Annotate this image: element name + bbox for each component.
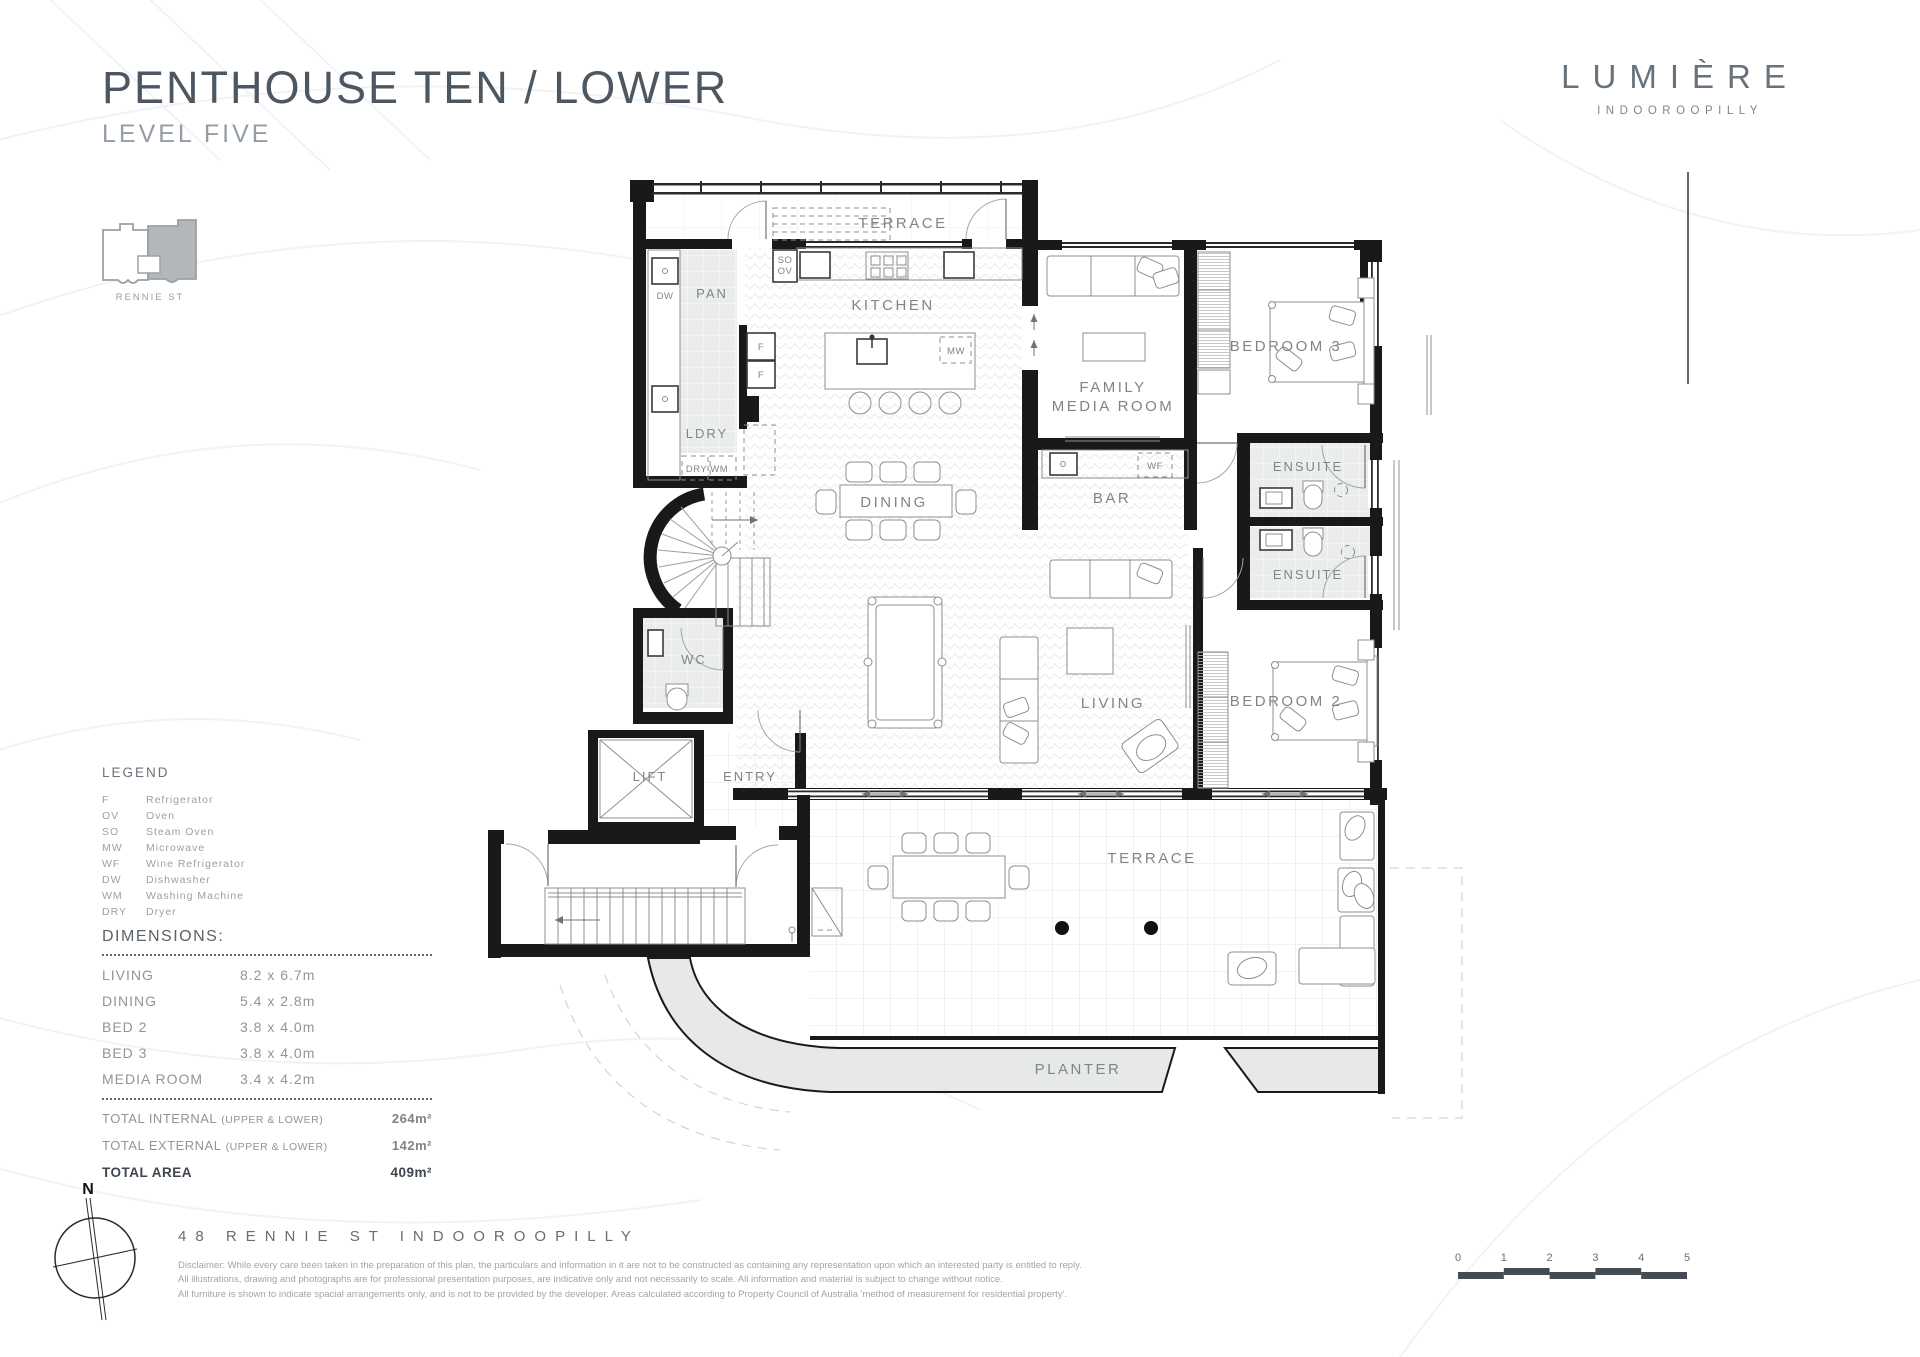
scale-tick-1: 1 [1501,1252,1507,1264]
label-ensuite1: ENSUITE [1273,459,1343,474]
terrace-column [1144,921,1158,935]
brand-block: LUMIÈRE INDOOROOPILLY [1530,58,1830,117]
pantry-floor [680,250,737,453]
dotted-divider [102,1098,432,1100]
terrace-top-floor [646,196,1022,240]
scale-bar: 0 1 2 3 4 5 [1455,1252,1690,1279]
terrace-bottom-edge [810,1036,1382,1040]
label-bedroom3: BEDROOM 3 [1230,338,1343,355]
dimension-row: LIVING8.2 x 6.7m [102,962,432,988]
scale-tick-0: 0 [1455,1252,1461,1264]
floor-plan: TERRACE PAN SO OV DW KITCHEN MW F F LDRY… [488,180,1462,1150]
scale-tick-5: 5 [1684,1252,1690,1264]
label-terrace-bottom: TERRACE [1107,850,1196,867]
total-external-row: TOTAL EXTERNAL (UPPER & LOWER) 142m² [102,1133,432,1160]
footer-address: 48 RENNIE ST INDOOROOPILLY [178,1228,1158,1245]
legend-block: LEGEND FRefrigerator OVOven SOSteam Oven… [102,765,245,920]
label-media-room: MEDIA ROOM [1052,398,1175,415]
label-f2: F [758,370,764,381]
label-so: SO [778,255,793,266]
bedroom2-furniture [1198,640,1377,788]
page-subtitle: LEVEL FIVE [102,120,728,149]
label-ov: OV [778,266,793,277]
header: PENTHOUSE TEN / LOWER LEVEL FIVE [102,62,728,149]
terrace-column [1055,921,1069,935]
label-kitchen: KITCHEN [851,297,934,314]
legend-item: OVOven [102,808,245,824]
page-title: PENTHOUSE TEN / LOWER [102,62,728,114]
legend-item: FRefrigerator [102,792,245,808]
legend-item: DRYDryer [102,904,245,920]
legend-item: MWMicrowave [102,840,245,856]
label-bar: BAR [1093,490,1131,507]
label-family: FAMILY [1079,379,1146,396]
disclaimer-line: Disclaimer: While every care been taken … [178,1259,1158,1273]
label-terrace-top: TERRACE [858,215,947,232]
terrace-right-edge [1378,798,1385,1094]
label-dining: DINING [860,494,928,511]
compass: N [53,1181,137,1320]
legend-item: SOSteam Oven [102,824,245,840]
legend-item: WFWine Refrigerator [102,856,245,872]
compass-north-label: N [82,1181,94,1198]
locator-highlight [138,256,160,273]
bedroom3-furniture [1198,252,1374,404]
brand-divider-line [1687,172,1689,384]
legend-item: WMWashing Machine [102,888,245,904]
dimension-row: BED 33.8 x 4.0m [102,1040,432,1066]
dimension-row: BED 23.8 x 4.0m [102,1014,432,1040]
scale-tick-2: 2 [1547,1252,1553,1264]
floorplan-page: { "header": { "title": "PENTHOUSE TEN / … [0,0,1920,1357]
label-mw: MW [947,346,965,357]
disclaimer-line: All furniture is shown to indicate spaci… [178,1288,1158,1302]
common-stairs [545,888,745,944]
label-wc: WC [681,652,707,667]
external-screens [1394,335,1431,630]
footer-disclaimer: Disclaimer: While every care been taken … [178,1259,1158,1302]
dimensions-title: DIMENSIONS: [102,928,432,946]
footer: 48 RENNIE ST INDOOROOPILLY Disclaimer: W… [178,1228,1158,1302]
legend-title: LEGEND [102,765,245,780]
label-ldry: LDRY [686,426,728,441]
total-internal-row: TOTAL INTERNAL (UPPER & LOWER) 264m² [102,1106,432,1133]
label-dw: DW [657,291,674,302]
label-dry-wm: DRY WM [686,464,728,475]
label-planter: PLANTER [1035,1061,1122,1078]
label-bedroom2: BEDROOM 2 [1230,693,1343,710]
label-wf: WF [1147,461,1163,472]
dimensions-block: DIMENSIONS: LIVING8.2 x 6.7m DINING5.4 x… [102,928,432,1185]
label-f1: F [758,342,764,353]
dimension-row: DINING5.4 x 2.8m [102,988,432,1014]
dimension-row: MEDIA ROOM3.4 x 4.2m [102,1066,432,1092]
disclaimer-line: All illustrations, drawing and photograp… [178,1273,1158,1287]
label-pan: PAN [696,286,728,301]
label-lift: LIFT [633,769,668,784]
floor-finishes [643,196,1380,1037]
brand-logo: LUMIÈRE [1530,58,1830,96]
legend-item: DWDishwasher [102,872,245,888]
terrace-bottom-floor [810,800,1380,1037]
label-ensuite2: ENSUITE [1273,567,1343,582]
scale-tick-3: 3 [1592,1252,1598,1264]
total-area-row: TOTAL AREA 409m² [102,1160,432,1185]
label-entry: ENTRY [723,769,777,784]
dotted-divider [102,954,432,956]
locator-map: RENNIE ST [103,220,196,303]
brand-location: INDOOROOPILLY [1530,105,1830,117]
locator-building-left [103,224,148,283]
locator-street-label: RENNIE ST [116,292,185,303]
scale-tick-4: 4 [1638,1252,1644,1264]
label-living: LIVING [1081,695,1145,712]
